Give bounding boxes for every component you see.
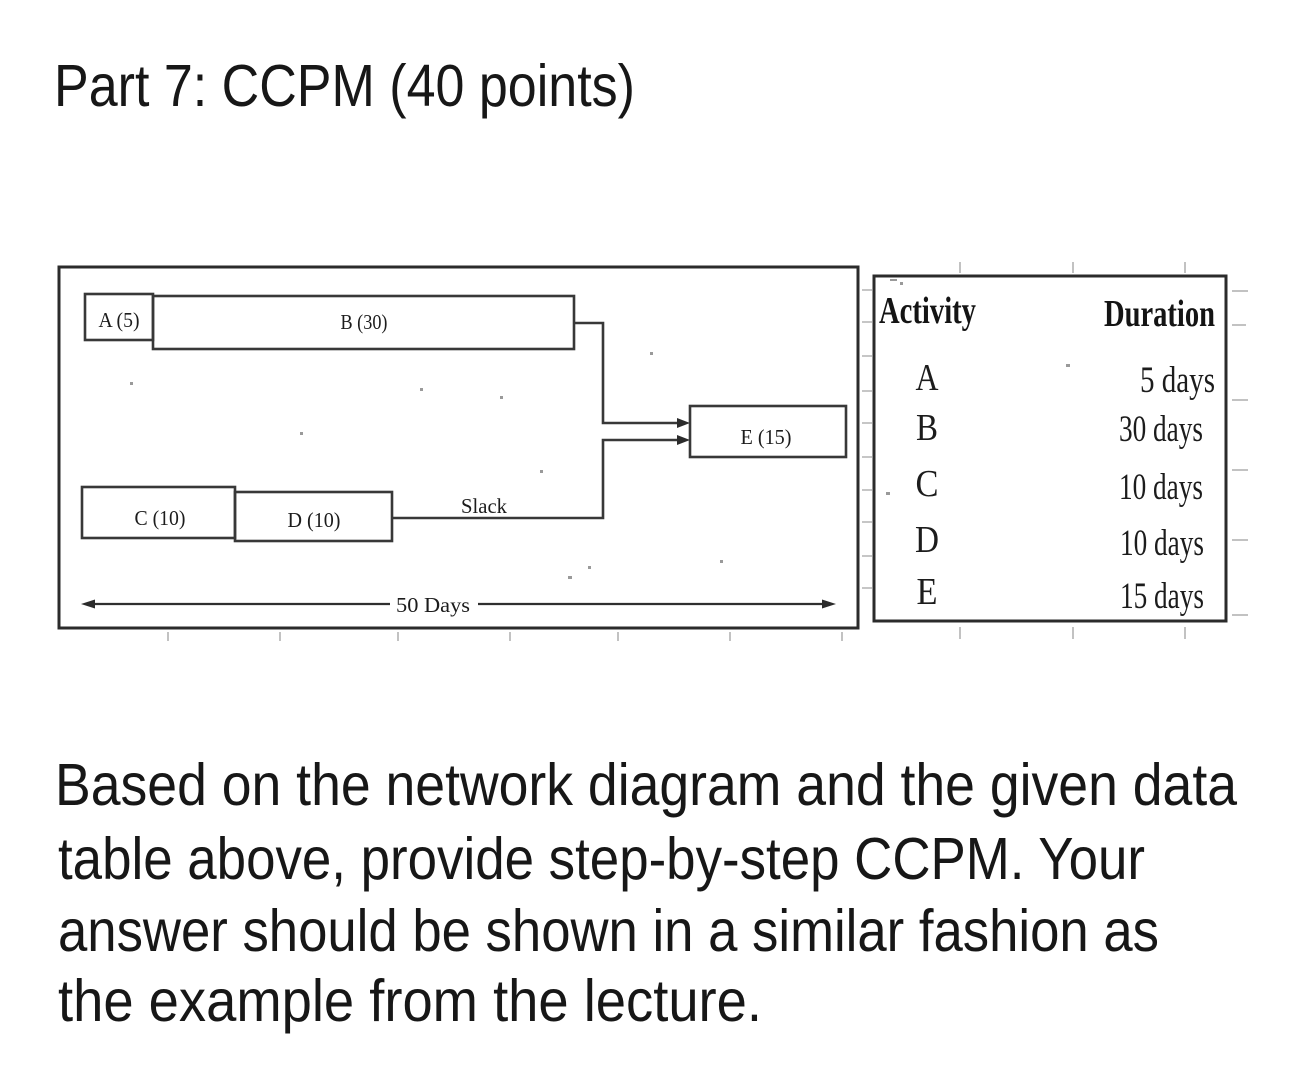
svg-text:the example from the lecture.: the example from the lecture. bbox=[58, 968, 762, 1034]
svg-text:Activity: Activity bbox=[879, 290, 976, 332]
svg-text:15 days: 15 days bbox=[1120, 576, 1204, 617]
svg-text:30 days: 30 days bbox=[1119, 409, 1203, 450]
svg-text:A: A bbox=[916, 357, 939, 399]
svg-text:10 days: 10 days bbox=[1119, 467, 1203, 508]
svg-text:C: C bbox=[916, 463, 939, 505]
svg-text:Slack: Slack bbox=[461, 494, 507, 518]
svg-text:C (10): C (10) bbox=[135, 506, 186, 530]
svg-text:A (5): A (5) bbox=[99, 308, 140, 332]
svg-text:D (10): D (10) bbox=[288, 508, 341, 532]
svg-text:table above, provide step-by-s: table above, provide step-by-step CCPM. … bbox=[58, 826, 1145, 892]
svg-text:50 Days: 50 Days bbox=[396, 593, 470, 617]
svg-text:answer should be shown in a si: answer should be shown in a similar fash… bbox=[58, 898, 1159, 964]
svg-text:5 days: 5 days bbox=[1140, 360, 1215, 401]
svg-text:D: D bbox=[915, 519, 939, 561]
svg-text:Duration: Duration bbox=[1104, 293, 1215, 335]
svg-text:Part 7: CCPM (40 points): Part 7: CCPM (40 points) bbox=[54, 53, 635, 119]
svg-text:Based on the network diagram a: Based on the network diagram and the giv… bbox=[55, 752, 1237, 818]
svg-text:E: E bbox=[917, 571, 938, 613]
svg-text:B (30): B (30) bbox=[341, 310, 388, 334]
svg-text:E (15): E (15) bbox=[741, 425, 792, 449]
svg-text:10 days: 10 days bbox=[1120, 523, 1204, 564]
svg-text:B: B bbox=[916, 407, 938, 449]
